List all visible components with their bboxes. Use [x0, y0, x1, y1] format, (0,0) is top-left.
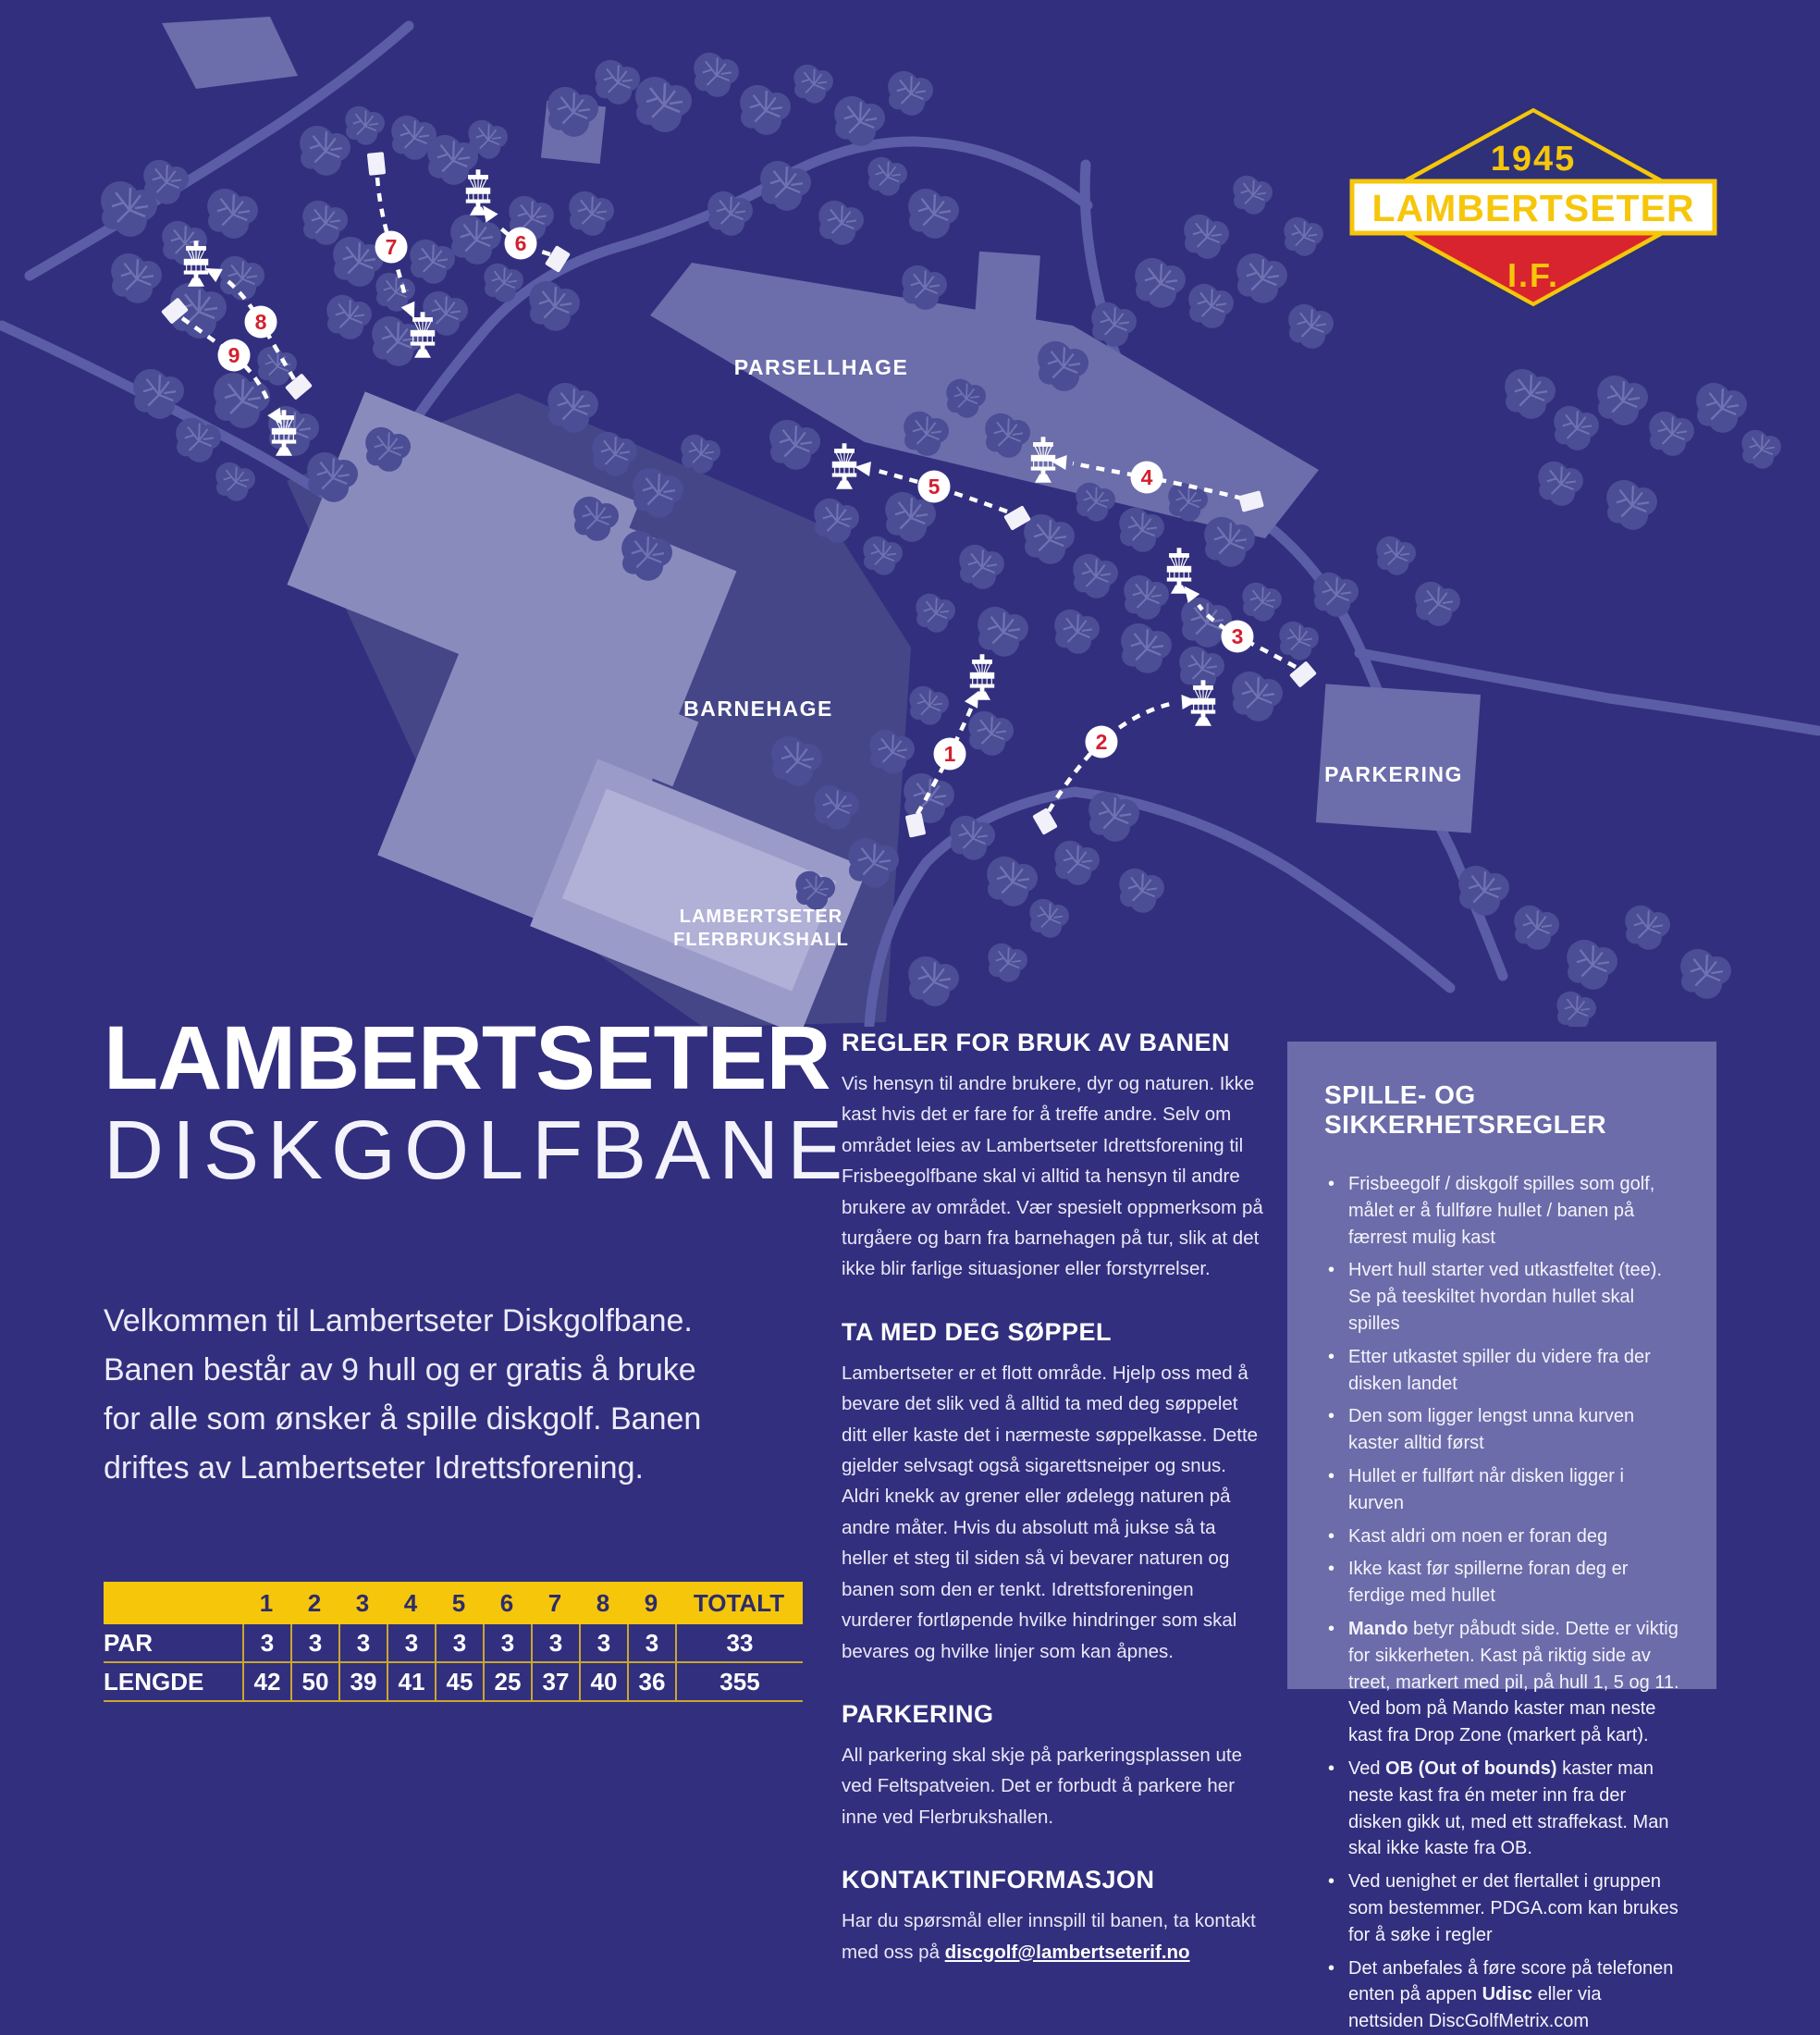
- scorecard-value-cell: 3: [435, 1624, 483, 1663]
- hole-5-number: 5: [928, 475, 941, 499]
- hole-1-basket-icon: [970, 655, 993, 699]
- rules-list-item: Etter utkastet spiller du videre fra der…: [1324, 1344, 1679, 1398]
- contact-email-link[interactable]: discgolf@lambertseterif.no: [945, 1942, 1190, 1963]
- section-kontakt-body: Har du spørsmål eller innspill til banen…: [842, 1905, 1263, 1967]
- hole-2-number: 2: [1096, 730, 1108, 754]
- rules-list: Frisbeegolf / diskgolf spilles som golf,…: [1324, 1171, 1679, 2035]
- scorecard-value-cell: 3: [531, 1624, 579, 1663]
- rules-heading: SPILLE- OG SIKKERHETSREGLER: [1324, 1080, 1679, 1140]
- scorecard-header-cell: 5: [435, 1582, 483, 1624]
- scorecard-header-cell: 3: [338, 1582, 387, 1624]
- scorecard-header-cell: 8: [579, 1582, 627, 1624]
- scorecard-corner-cell: [104, 1582, 242, 1624]
- scorecard-value-cell: 42: [242, 1663, 290, 1702]
- hole-8-number: 8: [255, 310, 267, 334]
- scorecard-value-cell: 3: [242, 1624, 290, 1663]
- hole-3-basket-icon: [1167, 549, 1190, 593]
- scorecard-value-cell: 45: [435, 1663, 483, 1702]
- scorecard-header-cell: 1: [242, 1582, 290, 1624]
- scorecard-value-cell: 3: [579, 1624, 627, 1663]
- logo-suffix: I.F.: [1507, 256, 1559, 294]
- scorecard-header-cell: 4: [387, 1582, 435, 1624]
- scorecard-value-cell: 41: [387, 1663, 435, 1702]
- poster-title: LAMBERTSETER: [104, 1010, 851, 1107]
- scorecard-header-cell: 9: [627, 1582, 675, 1624]
- section-regler-body: Vis hensyn til andre brukere, dyr og nat…: [842, 1068, 1263, 1285]
- scorecard-value-cell: 37: [531, 1663, 579, 1702]
- rules-list-item: Ikke kast før spillerne foran deg er fer…: [1324, 1556, 1679, 1609]
- hole-5-basket-icon: [832, 444, 855, 488]
- scorecard-value-cell: 25: [483, 1663, 531, 1702]
- label-parkering: PARKERING: [1324, 762, 1463, 786]
- rules-panel: SPILLE- OG SIKKERHETSREGLER Frisbeegolf …: [1287, 1042, 1716, 1689]
- section-regler-heading: REGLER FOR BRUK AV BANEN: [842, 1029, 1263, 1057]
- scorecard-row-label: PAR: [104, 1624, 242, 1663]
- scorecard-value-cell: 3: [338, 1624, 387, 1663]
- logo-year: 1945: [1491, 140, 1577, 179]
- section-regler: REGLER FOR BRUK AV BANEN Vis hensyn til …: [842, 1029, 1263, 1285]
- scorecard-value-cell: 3: [483, 1624, 531, 1663]
- hole-3-number: 3: [1232, 624, 1244, 648]
- rules-list-item: Ved OB (Out of bounds) kaster man neste …: [1324, 1756, 1679, 1862]
- label-flerbrukshall-2: FLERBRUKSHALL: [673, 930, 849, 950]
- scorecard-value-cell: 39: [338, 1663, 387, 1702]
- section-parkering-heading: PARKERING: [842, 1700, 1263, 1729]
- course-map: 123456789 PARSELLHAGE BARNEHAGE LAMBERTS…: [0, 0, 1820, 1027]
- scorecard-header-cell: 2: [290, 1582, 338, 1624]
- scorecard-value-cell: 3: [290, 1624, 338, 1663]
- scorecard-value-cell: 3: [387, 1624, 435, 1663]
- hole-1-number: 1: [944, 742, 956, 766]
- label-parsellhage: PARSELLHAGE: [734, 355, 909, 379]
- hole-7-tee: [367, 152, 386, 176]
- scorecard-header-cell: 7: [531, 1582, 579, 1624]
- hole-2-tee: [1032, 808, 1058, 835]
- title-block: LAMBERTSETER DISKGOLFBANE: [104, 1010, 851, 1195]
- poster: 123456789 PARSELLHAGE BARNEHAGE LAMBERTS…: [0, 0, 1820, 1820]
- hole-6-number: 6: [515, 231, 527, 255]
- section-kontakt-heading: KONTAKTINFORMASJON: [842, 1866, 1263, 1894]
- logo-name: LAMBERTSETER: [1371, 187, 1694, 229]
- hole-8-basket-icon: [184, 241, 207, 286]
- scorecard-value-cell: 36: [627, 1663, 675, 1702]
- label-barnehage: BARNEHAGE: [683, 697, 833, 721]
- section-soppel-heading: TA MED DEG SØPPEL: [842, 1318, 1263, 1347]
- club-logo: 1945 LAMBERTSETER I.F.: [1350, 106, 1716, 308]
- section-parkering-body: All parkering skal skje på parkeringspla…: [842, 1740, 1263, 1832]
- middle-column: REGLER FOR BRUK AV BANEN Vis hensyn til …: [842, 1029, 1263, 2001]
- hole-9-number: 9: [228, 343, 240, 367]
- scorecard-value-cell: 355: [675, 1663, 803, 1702]
- scorecard-value-cell: 50: [290, 1663, 338, 1702]
- rules-list-item: Hvert hull starter ved utkastfeltet (tee…: [1324, 1257, 1679, 1337]
- rules-list-item: Hullet er fullført når disken ligger i k…: [1324, 1463, 1679, 1517]
- intro-paragraph: Velkommen til Lambertseter Diskgolfbane.…: [104, 1297, 705, 1493]
- scorecard-value-cell: 40: [579, 1663, 627, 1702]
- scorecard-header-cell: 6: [483, 1582, 531, 1624]
- hole-2-basket-icon: [1191, 681, 1214, 725]
- scorecard-row-label: LENGDE: [104, 1663, 242, 1702]
- scorecard-value-cell: 33: [675, 1624, 803, 1663]
- rules-list-item: Mando betyr påbudt side. Dette er viktig…: [1324, 1616, 1679, 1749]
- hole-7-number: 7: [386, 235, 398, 259]
- rules-list-item: Kast aldri om noen er foran deg: [1324, 1523, 1679, 1550]
- rules-list-item: Frisbeegolf / diskgolf spilles som golf,…: [1324, 1171, 1679, 1251]
- section-soppel: TA MED DEG SØPPEL Lambertseter er et flo…: [842, 1318, 1263, 1667]
- rules-list-item: Det anbefales å føre score på telefonen …: [1324, 1955, 1679, 2035]
- label-flerbrukshall-1: LAMBERTSETER: [680, 906, 842, 927]
- section-soppel-body: Lambertseter er et flott område. Hjelp o…: [842, 1358, 1263, 1667]
- poster-subtitle: DISKGOLFBANE: [104, 1107, 851, 1195]
- section-kontakt: KONTAKTINFORMASJON Har du spørsmål eller…: [842, 1866, 1263, 1967]
- rules-list-item: Den som ligger lengst unna kurven kaster…: [1324, 1403, 1679, 1457]
- scorecard-value-cell: 3: [627, 1624, 675, 1663]
- hole-4-number: 4: [1141, 465, 1153, 489]
- scorecard-header-cell: TOTALT: [675, 1582, 803, 1624]
- rules-list-item: Ved uenighet er det flertallet i gruppen…: [1324, 1868, 1679, 1948]
- scorecard-table: 123456789TOTALTPAR33333333333LENGDE42503…: [104, 1582, 803, 1702]
- section-parkering: PARKERING All parkering skal skje på par…: [842, 1700, 1263, 1832]
